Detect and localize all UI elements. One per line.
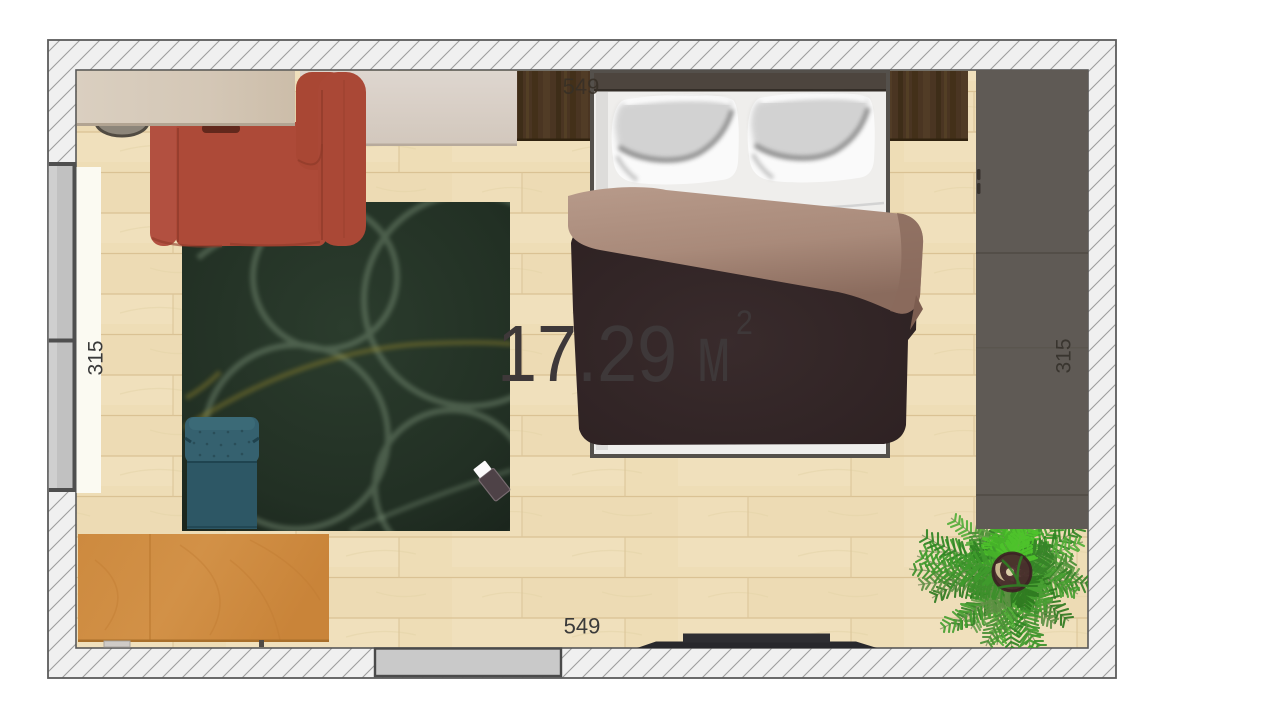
svg-text:17.29 м2: 17.29 м2 — [497, 304, 753, 399]
svg-text:549: 549 — [564, 614, 601, 639]
svg-text:315: 315 — [85, 340, 108, 375]
svg-text:549: 549 — [563, 74, 600, 99]
svg-text:315: 315 — [1053, 338, 1076, 373]
